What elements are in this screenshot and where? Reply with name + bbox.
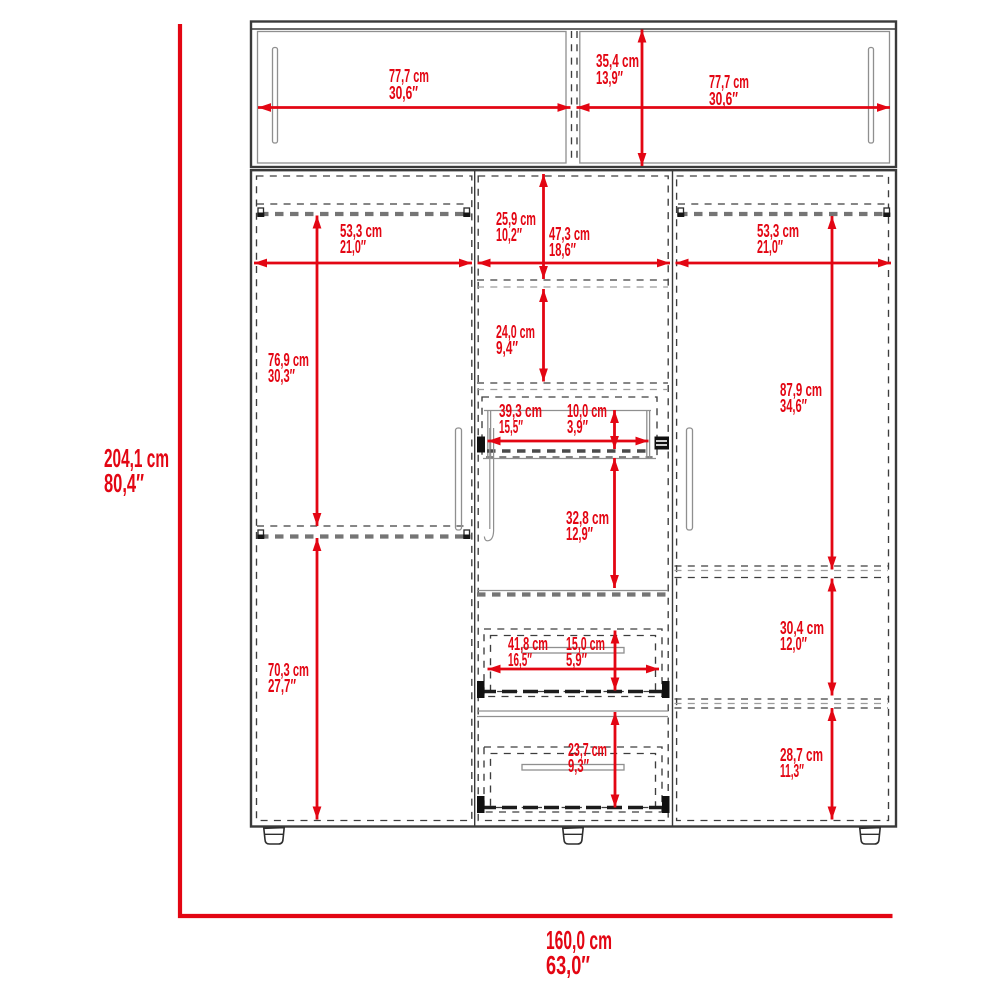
svg-text:34,6″: 34,6″ [780, 396, 807, 416]
svg-text:27,7″: 27,7″ [268, 676, 296, 696]
svg-text:21,0″: 21,0″ [340, 237, 366, 257]
svg-text:9,4″: 9,4″ [496, 338, 518, 358]
svg-text:21,0″: 21,0″ [757, 237, 783, 257]
svg-text:15,5″: 15,5″ [499, 417, 523, 437]
svg-text:18,6″: 18,6″ [549, 240, 576, 260]
svg-text:11,3″: 11,3″ [780, 761, 804, 781]
svg-text:12,9″: 12,9″ [566, 524, 593, 544]
svg-text:30,6″: 30,6″ [389, 83, 418, 103]
svg-text:63,0″: 63,0″ [546, 950, 590, 980]
svg-text:80,4″: 80,4″ [104, 468, 144, 498]
svg-text:13,9″: 13,9″ [596, 68, 623, 88]
svg-text:10,2″: 10,2″ [496, 225, 522, 245]
svg-text:5,9″: 5,9″ [566, 650, 587, 670]
svg-text:30,6″: 30,6″ [709, 89, 738, 109]
svg-text:9,3″: 9,3″ [568, 756, 589, 776]
svg-text:30,3″: 30,3″ [268, 366, 295, 386]
svg-text:16,5″: 16,5″ [508, 650, 532, 670]
svg-text:3,9″: 3,9″ [567, 417, 588, 437]
svg-text:12,0″: 12,0″ [780, 634, 807, 654]
